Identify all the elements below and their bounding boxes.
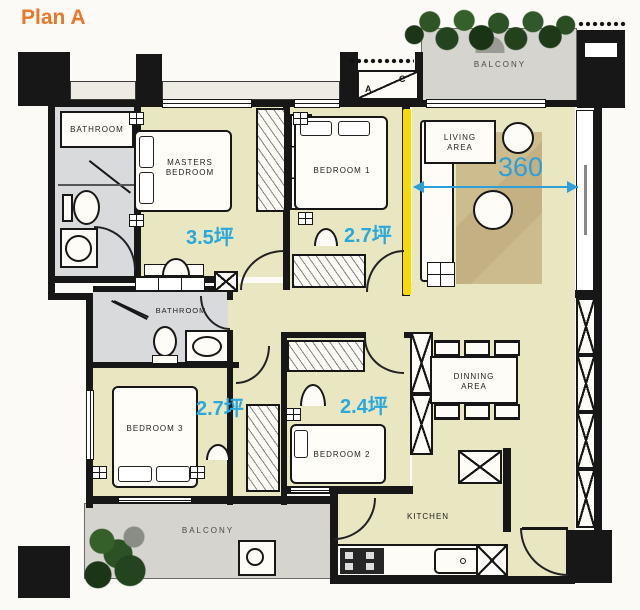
bedroom1-area-label: 2.7坪 [344,219,392,248]
side-table-round [502,122,534,154]
dining-chair-2 [464,340,490,356]
column-bottom-left [18,546,70,598]
ac-unit: A C [357,70,419,100]
window-bedroom3-south [118,497,192,503]
burner [345,552,353,559]
exterior-wall-band-right [162,81,340,100]
hall-closet [246,404,280,492]
fixture-symbol-bedroom3-1 [92,466,107,479]
dimension-arrow-left [413,181,424,193]
coffee-table [473,190,513,230]
highlight-wall-yellow [403,109,411,295]
fixture-symbol-bedroom1-2 [298,212,313,225]
dining-chair-6 [494,404,520,420]
fixture-symbol-masters-1 [129,112,144,125]
masters-wardrobe [256,108,286,212]
wall-right-connector [575,290,602,298]
bathroom-mid-cabinet [135,277,205,291]
masters-area-label: 3.5坪 [186,221,234,250]
floor-plan-canvas: Plan A A C BALCONY [0,0,640,610]
window-bedroom2-south [290,487,330,493]
bedroom3-area-label: 2.7坪 [196,392,244,421]
column-right-2 [576,355,596,412]
toilet-top-bowl [73,190,100,225]
balcony-top-plants [404,5,576,53]
dining-chair-1 [434,340,460,356]
burner [366,552,374,559]
toilet-top-tank [62,194,73,222]
window-masters-top [162,99,252,108]
fixture-symbol-bedroom1-1 [293,112,308,125]
louver-strip-top-right [577,20,627,28]
bathroom-top-partition [58,184,134,186]
column-right-3 [576,412,596,469]
exterior-wall-band-left [70,81,136,100]
column-top-2 [136,54,162,102]
bathroom-top-label: BATHROOM [62,125,132,135]
balcony-top-label: BALCONY [455,60,545,70]
kitchen-label: KITCHEN [398,512,458,522]
kitchen-sink-drain [460,558,466,564]
bedroom1-pillow-2 [338,121,370,136]
bedroom3-label: BEDROOM 3 [115,424,195,434]
column-top-left [18,52,70,106]
corridor-xbox [214,271,238,292]
column-right-4 [576,469,596,528]
bedroom1-closet [292,254,366,288]
balcony-bottom-label: BALCONY [168,526,248,536]
fixture-symbol-bedroom2 [286,408,301,421]
wall-kitchen-east [503,448,511,532]
burner [345,563,353,570]
bedroom1-label: BEDROOM 1 [302,166,382,176]
dining-chair-3 [494,340,520,356]
wall-bedroom3-east [227,362,233,505]
window-living-balcony [426,99,546,108]
kitchen-sink [434,548,480,574]
sink-mid-basin [192,336,222,357]
dining-area-label: DINNING AREA [446,372,502,392]
wall-bedroom2-north-left [281,332,366,338]
bedroom3-pillow-1 [118,466,152,482]
fixture-symbol-masters-2 [129,214,144,227]
washing-machine-door [246,548,264,566]
burner [366,563,374,570]
living-area-label: LIVING AREA [432,133,488,153]
bedroom2-closet [287,340,365,372]
balcony-plant [78,516,158,600]
entry-cabinet-xbox [458,450,502,484]
wall-bottom [330,576,575,584]
masters-bedroom-label: MASTERS BEDROOM [152,158,228,178]
column-top-right-window [584,42,618,58]
dimension-line [414,186,578,188]
dimension-arrow-right [567,181,578,193]
living-label-box: LIVING AREA [424,120,496,164]
ac-letter-c: C [399,74,406,84]
sink-top-basin [65,235,92,262]
entry-door-leaf [522,527,568,530]
toilet-mid-tank [152,355,178,364]
dimension-value: 360 [498,152,543,183]
sofa-corner-table [427,262,455,287]
dining-chair-4 [434,404,460,420]
toilet-mid-bowl [153,326,177,357]
dining-chair-5 [464,404,490,420]
bedroom2-area-label: 2.4坪 [340,390,388,419]
kitchen-cabinet-xbox [476,544,508,577]
stove [340,548,384,574]
window-bedroom1-top [294,99,340,108]
dining-table: DINNING AREA [430,356,518,404]
wall-left-upper [48,100,55,300]
bedroom2-label: BEDROOM 2 [302,450,382,460]
bedroom3-pillow-2 [156,466,190,482]
louver-strip-ac [348,57,414,65]
window-living-right-bar [584,165,587,235]
fixture-symbol-bedroom3-2 [190,466,205,479]
window-bedroom3-west [86,390,94,460]
column-right-1 [576,298,596,355]
page-title: Plan A [21,6,86,30]
ac-letter-a: A [365,84,372,94]
column-bottom-right [566,530,612,583]
